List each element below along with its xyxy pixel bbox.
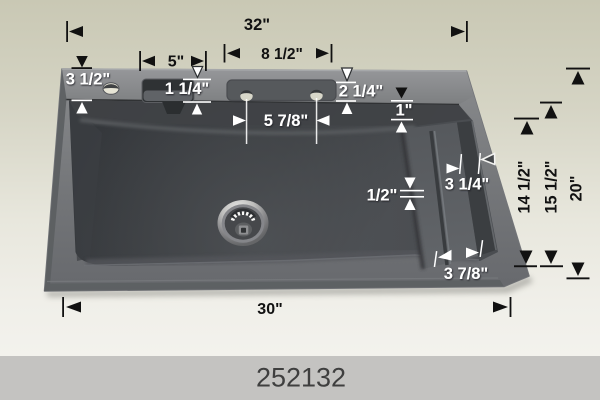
svg-text:1/2": 1/2" [367, 187, 398, 205]
svg-text:20": 20" [568, 176, 586, 202]
svg-text:5": 5" [168, 54, 184, 71]
svg-text:15 1/2": 15 1/2" [543, 161, 561, 214]
svg-text:32": 32" [244, 16, 270, 34]
svg-text:3 1/4": 3 1/4" [445, 176, 490, 194]
svg-text:8 1/2": 8 1/2" [261, 46, 303, 63]
svg-text:30": 30" [257, 301, 282, 318]
svg-text:1 1/4": 1 1/4" [165, 80, 210, 98]
svg-text:14 1/2": 14 1/2" [516, 161, 534, 214]
svg-text:252132: 252132 [256, 363, 346, 393]
svg-text:3 7/8": 3 7/8" [444, 265, 489, 283]
svg-text:3 1/2": 3 1/2" [66, 71, 111, 89]
svg-text:1": 1" [396, 102, 413, 120]
svg-text:2 1/4": 2 1/4" [339, 83, 384, 101]
svg-text:5 7/8": 5 7/8" [264, 112, 309, 130]
